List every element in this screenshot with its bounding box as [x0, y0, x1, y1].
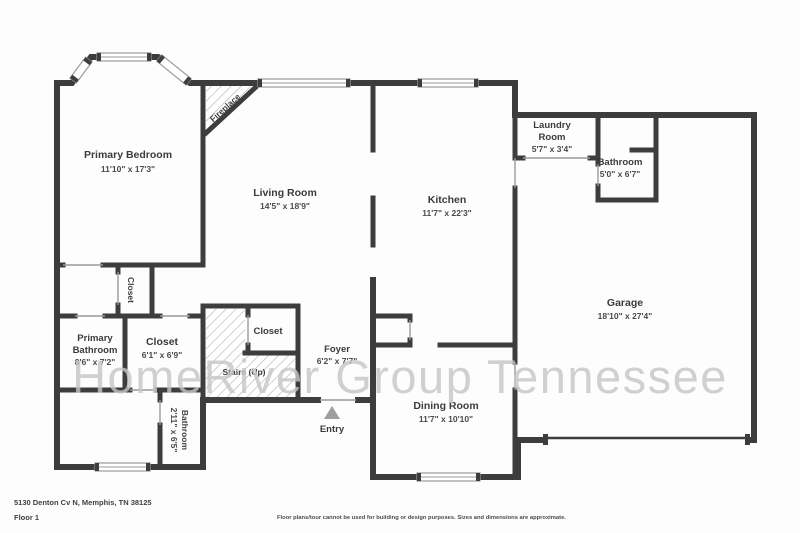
interior-walls	[57, 83, 656, 477]
room-dims-bathroom-top: 5'0" x 6'7"	[600, 169, 640, 179]
room-dims-dining-room: 11'7" x 10'10"	[419, 414, 473, 424]
garage-door	[543, 434, 750, 445]
watermark: HomeRiver Group Tennessee	[72, 350, 728, 403]
floor-label: Floor 1	[14, 513, 39, 522]
room-label-primary-bedroom: Primary Bedroom	[84, 149, 172, 161]
room-label-primary-bathroom-1: Primary	[77, 333, 113, 344]
room-dims-garage: 18'10" x 27'4"	[598, 311, 653, 321]
window-living	[258, 79, 350, 87]
room-label-closet-stairs: Closet	[253, 326, 283, 337]
window-dining	[417, 473, 480, 481]
room-label-closet-hall: Closet	[126, 277, 136, 303]
window-kitchen	[418, 79, 478, 87]
window-bottom-left	[95, 463, 150, 471]
room-dims-living-room: 14'5" x 18'9"	[260, 201, 310, 211]
entry-arrow-icon	[324, 406, 340, 419]
room-dims-kitchen: 11'7" x 22'3"	[422, 208, 471, 218]
room-label-laundry-2: Room	[539, 132, 566, 143]
window-bay-top	[97, 53, 151, 61]
room-label-closet-main: Closet	[146, 336, 179, 348]
disclaimer-text: Floor plans/tour cannot be used for buil…	[277, 515, 566, 521]
room-dims-laundry: 5'7" x 3'4"	[532, 144, 572, 154]
address-text: 5130 Denton Cv N, Memphis, TN 38125	[14, 498, 152, 507]
entry-label: Entry	[320, 424, 345, 435]
room-label-bathroom-small: Bathroom	[180, 410, 190, 451]
room-label-laundry-1: Laundry	[533, 120, 571, 131]
room-dims-primary-bedroom: 11'10" x 17'3"	[101, 164, 155, 174]
floor-plan-page: Primary Bedroom 11'10" x 17'3" Living Ro…	[0, 0, 800, 533]
room-dims-bathroom-small: 2'11" x 6'5"	[169, 408, 179, 453]
floor-plan-canvas: Primary Bedroom 11'10" x 17'3" Living Ro…	[0, 0, 800, 490]
window-bay-left	[70, 57, 92, 83]
room-label-living-room: Living Room	[253, 187, 317, 199]
room-label-kitchen: Kitchen	[428, 194, 467, 206]
room-label-bathroom-top: Bathroom	[598, 157, 643, 168]
room-label-garage: Garage	[607, 297, 643, 309]
window-bay-right	[157, 55, 192, 85]
